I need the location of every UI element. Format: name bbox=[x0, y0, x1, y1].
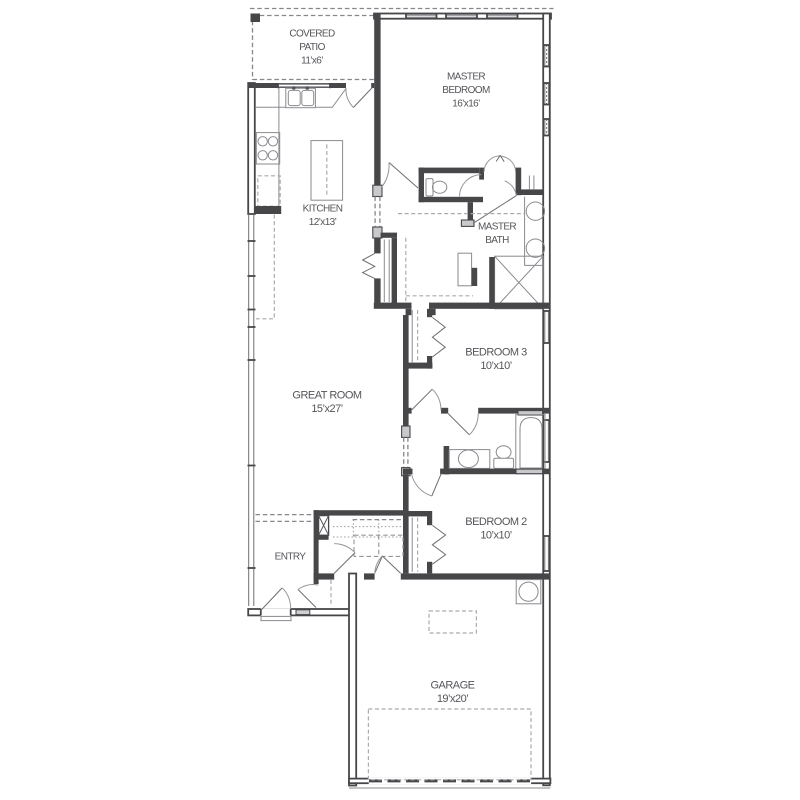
svg-text:GARAGE: GARAGE bbox=[430, 680, 474, 692]
svg-text:19’x20’: 19’x20’ bbox=[437, 693, 468, 705]
svg-text:11’x6’: 11’x6’ bbox=[301, 56, 323, 67]
svg-text:16’x16’: 16’x16’ bbox=[452, 99, 480, 110]
svg-text:BATH: BATH bbox=[485, 235, 509, 246]
svg-text:MASTER: MASTER bbox=[447, 72, 485, 83]
svg-text:15’x27’: 15’x27’ bbox=[311, 403, 342, 415]
svg-text:KITCHEN: KITCHEN bbox=[303, 204, 343, 215]
svg-text:BEDROOM 3: BEDROOM 3 bbox=[465, 347, 527, 359]
svg-text:COVERED: COVERED bbox=[289, 29, 335, 40]
svg-text:ENTRY: ENTRY bbox=[275, 552, 307, 563]
svg-text:10’x10’: 10’x10’ bbox=[480, 360, 511, 372]
svg-text:10’x10’: 10’x10’ bbox=[480, 530, 511, 542]
svg-text:PATIO: PATIO bbox=[299, 42, 325, 53]
svg-text:12’x13’: 12’x13’ bbox=[309, 217, 337, 228]
svg-text:MASTER: MASTER bbox=[478, 222, 516, 233]
svg-text:GREAT ROOM: GREAT ROOM bbox=[292, 390, 361, 402]
svg-text:BEDROOM 2: BEDROOM 2 bbox=[465, 516, 527, 528]
svg-text:BEDROOM: BEDROOM bbox=[442, 85, 490, 96]
